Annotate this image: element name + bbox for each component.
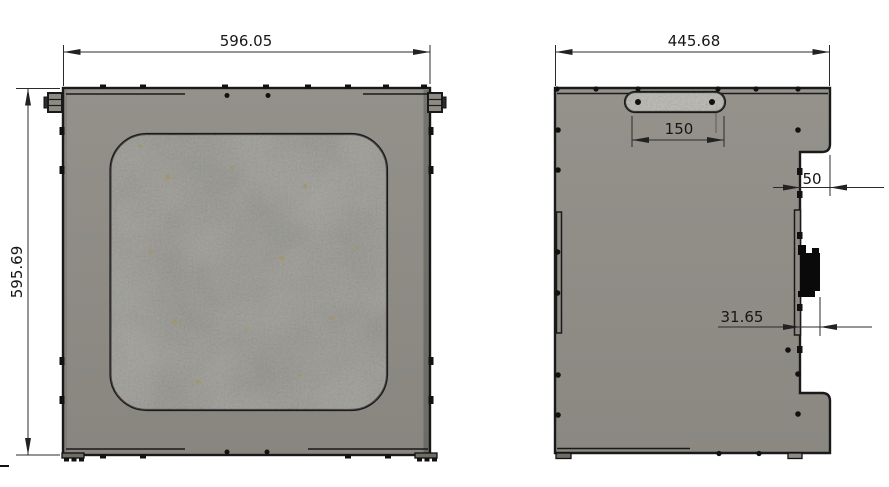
dim-connector-offset-label: 31.65 [721,308,764,326]
dim-front-width: 596.05 [64,32,431,86]
dim-front-height-label: 595.69 [8,246,26,299]
side-edge-flange [557,212,562,333]
dim-front-width-label: 596.05 [220,32,273,50]
dim-step-depth-label: 50 [802,170,821,188]
dim-handle-width-label: 150 [665,120,694,138]
dim-side-width-label: 445.68 [668,32,721,50]
technical-drawing: 596.05 595.69 445.68 150 [0,0,889,487]
handle-screw-right [709,99,715,105]
side-handle [625,92,725,112]
front-hinge-right [428,93,446,112]
side-connector-block [798,245,820,297]
side-view [554,86,830,458]
dim-front-height: 595.69 [8,89,60,456]
front-window-texture [111,134,388,410]
side-edge-plate [795,210,801,335]
handle-screw-left [635,99,641,105]
front-view [44,85,446,462]
front-hinge-left [44,93,62,112]
side-panel [555,88,830,453]
dim-side-width: 445.68 [556,32,830,86]
drawing-canvas: 596.05 595.69 445.68 150 [0,0,889,487]
